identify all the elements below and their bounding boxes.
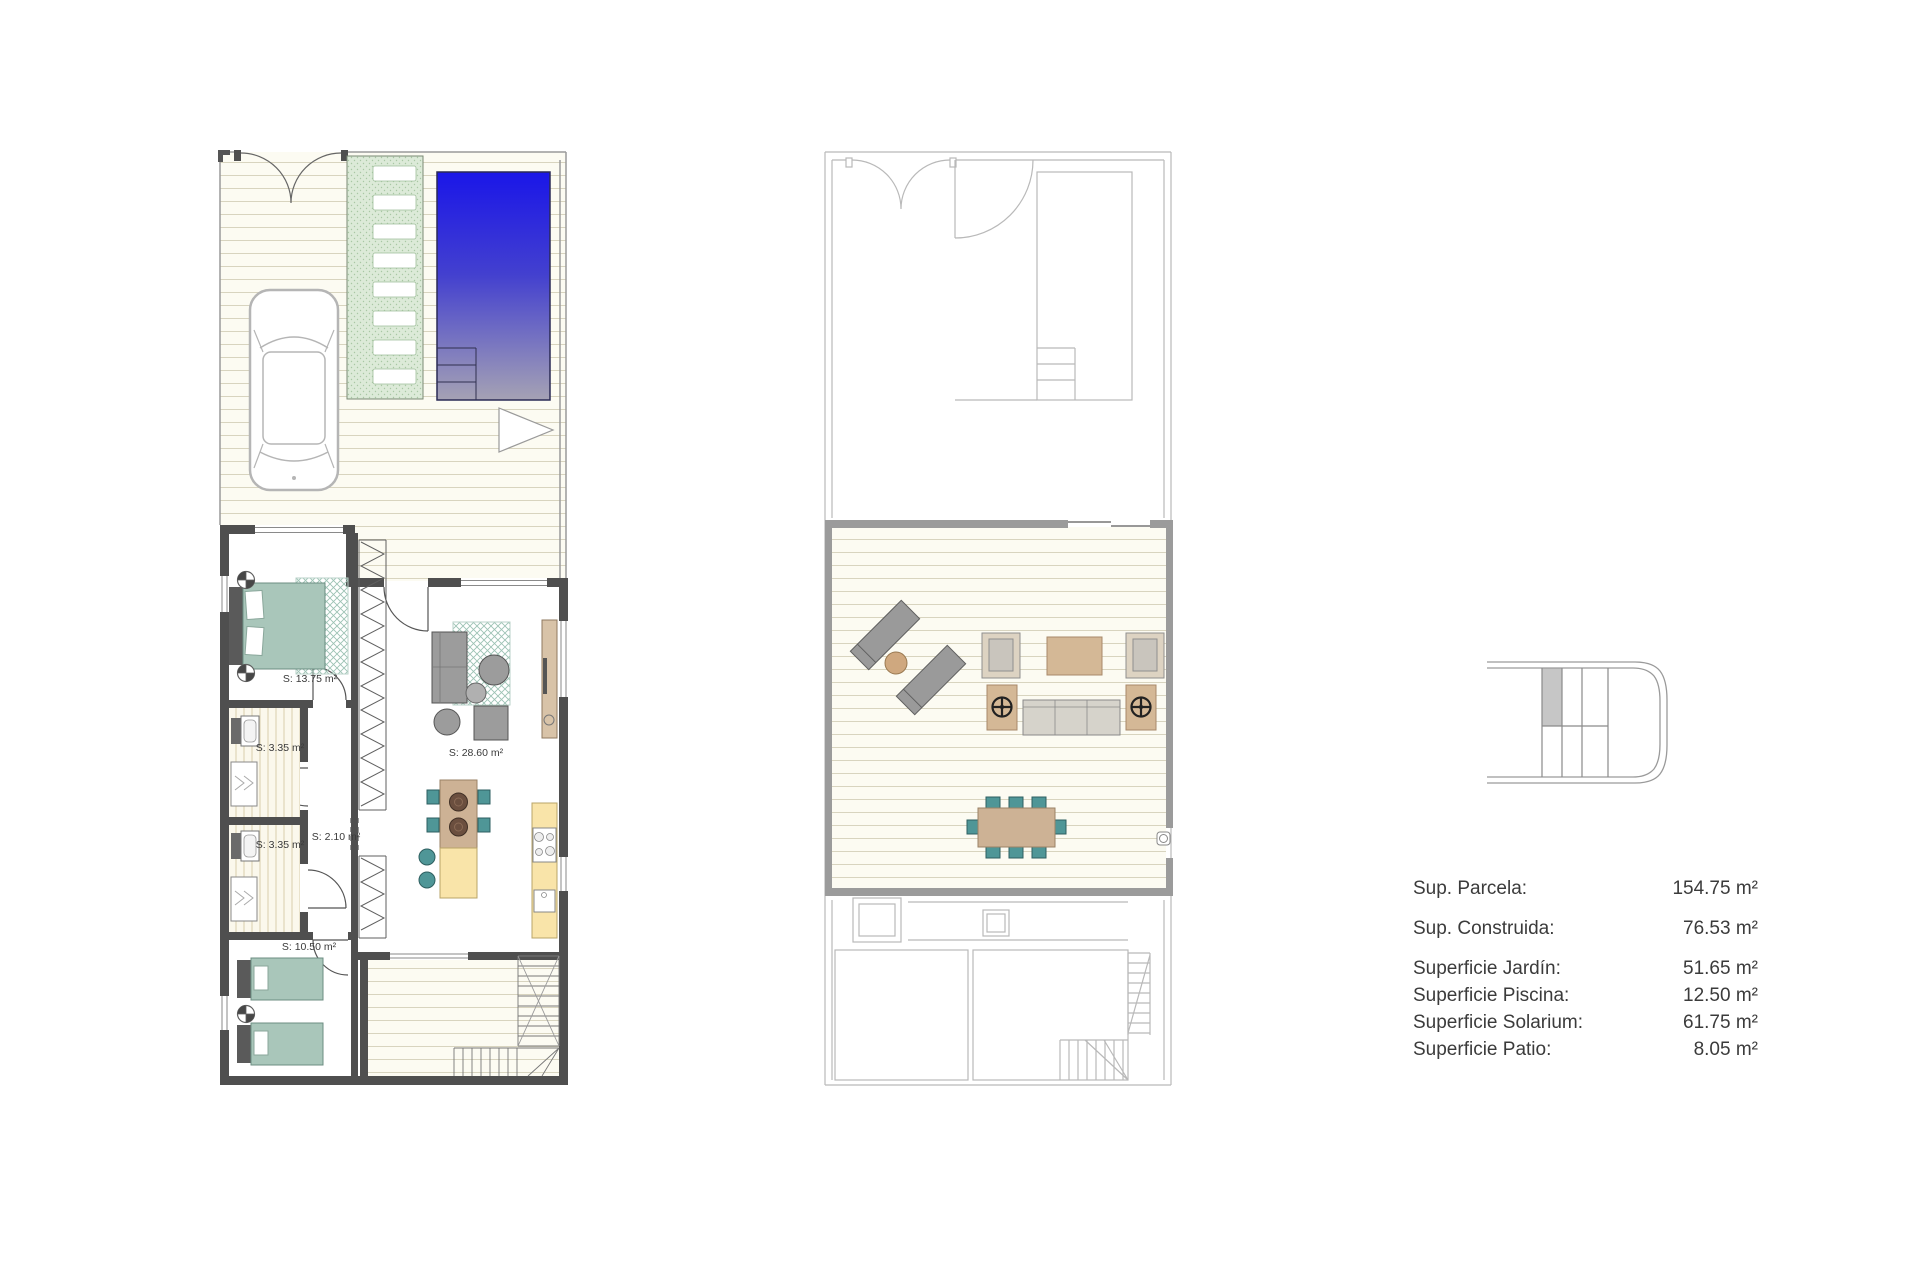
shower: [231, 877, 257, 921]
side-table-parasol: [1126, 685, 1156, 730]
legend-row: Sup. Construida: 76.53 m²: [1413, 918, 1758, 940]
bathroom-2: S: 3.35 m²: [229, 825, 305, 932]
garden-path: [347, 156, 423, 399]
stool: [419, 872, 435, 888]
bedroom-2: S: 10.50 m²: [237, 941, 337, 1065]
coffee-table: [1047, 637, 1102, 675]
floor-plan-sheet: S: 13.75 m² S: 3.35 m² S: 2.10 m²: [0, 0, 1920, 1280]
shower: [231, 762, 257, 806]
ceiling-light-icon: [238, 665, 255, 682]
room-label-bedroom-1: S: 13.75 m²: [283, 673, 338, 685]
armchair: [1126, 633, 1164, 678]
side-table-parasol: [987, 685, 1017, 730]
stool: [419, 849, 435, 865]
legend-label: Superficie Piscina:: [1413, 985, 1569, 1007]
round-side-table: [885, 652, 907, 674]
legend-row: Superficie Piscina: 12.50 m²: [1413, 985, 1758, 1007]
plans-drawing: S: 13.75 m² S: 3.35 m² S: 2.10 m²: [0, 0, 1920, 1280]
legend-label: Superficie Jardín:: [1413, 958, 1561, 980]
single-bed: [237, 958, 323, 1000]
car: [250, 290, 338, 490]
legend-value: 61.75 m²: [1683, 1012, 1758, 1034]
legend-value: 12.50 m²: [1683, 985, 1758, 1007]
bedroom-1: S: 13.75 m²: [229, 572, 348, 686]
legend-label: Sup. Parcela:: [1413, 878, 1527, 900]
legend-row: Sup. Parcela: 154.75 m²: [1413, 878, 1758, 900]
round-table-small: [466, 683, 486, 703]
living-kitchen: S: 28.60 m²: [419, 620, 557, 938]
wardrobe: [359, 540, 386, 938]
ceiling-light-icon: [238, 1006, 255, 1023]
legend-row: Superficie Solarium: 61.75 m²: [1413, 1012, 1758, 1034]
dining-set: [427, 780, 490, 848]
legend-value: 51.65 m²: [1683, 958, 1758, 980]
legend-row: Superficie Patio: 8.05 m²: [1413, 1039, 1758, 1061]
pouf: [434, 709, 460, 735]
legend-label: Superficie Patio:: [1413, 1039, 1551, 1061]
ceiling-light-icon: [238, 572, 255, 589]
key-plan-outline: [1487, 662, 1667, 783]
ground-floor-plan: S: 13.75 m² S: 3.35 m² S: 2.10 m²: [218, 150, 568, 1085]
outdoor-sofa: [1023, 700, 1120, 735]
legend-value: 76.53 m²: [1683, 918, 1758, 940]
room-label-bathroom-2: S: 3.35 m²: [256, 839, 305, 851]
sofa: [432, 632, 467, 703]
side-table: [474, 706, 508, 740]
kitchen-island: [440, 848, 477, 898]
bathroom-1: S: 3.35 m²: [229, 708, 305, 817]
single-bed: [237, 1023, 323, 1065]
key-plan: [1487, 662, 1667, 783]
lower-patio-outline: [835, 950, 1150, 1080]
sink-icon: [534, 890, 555, 912]
armchair: [982, 633, 1020, 678]
sliding-door: [1068, 522, 1150, 526]
double-bed: [229, 583, 325, 669]
solarium-plan: [825, 152, 1173, 1085]
wall-light: [1157, 832, 1170, 845]
parasol-base-icon: [993, 698, 1012, 717]
legend-value: 8.05 m²: [1694, 1039, 1758, 1061]
hall: S: 2.10 m²: [312, 831, 361, 843]
legend-label: Superficie Solarium:: [1413, 1012, 1583, 1034]
surface-legend: Sup. Parcela: 154.75 m² Sup. Construida:…: [1413, 878, 1758, 1066]
parasol-base-icon: [1132, 698, 1151, 717]
tv-bench: [542, 620, 557, 738]
room-label-hall: S: 2.10 m²: [312, 831, 361, 843]
room-label-living: S: 28.60 m²: [449, 747, 504, 759]
legend-row: Superficie Jardín: 51.65 m²: [1413, 958, 1758, 980]
patio: [368, 956, 559, 1076]
legend-value: 154.75 m²: [1672, 878, 1758, 900]
room-label-bedroom-2: S: 10.50 m²: [282, 941, 337, 953]
lower-kitchen-outline: [853, 898, 1128, 942]
kitchen-counter: [532, 803, 557, 938]
room-label-bathroom-1: S: 3.35 m²: [256, 742, 305, 754]
key-plan-highlighted-unit: [1542, 668, 1562, 726]
legend-label: Sup. Construida:: [1413, 918, 1555, 940]
round-table: [479, 655, 509, 685]
swimming-pool: [437, 172, 550, 400]
